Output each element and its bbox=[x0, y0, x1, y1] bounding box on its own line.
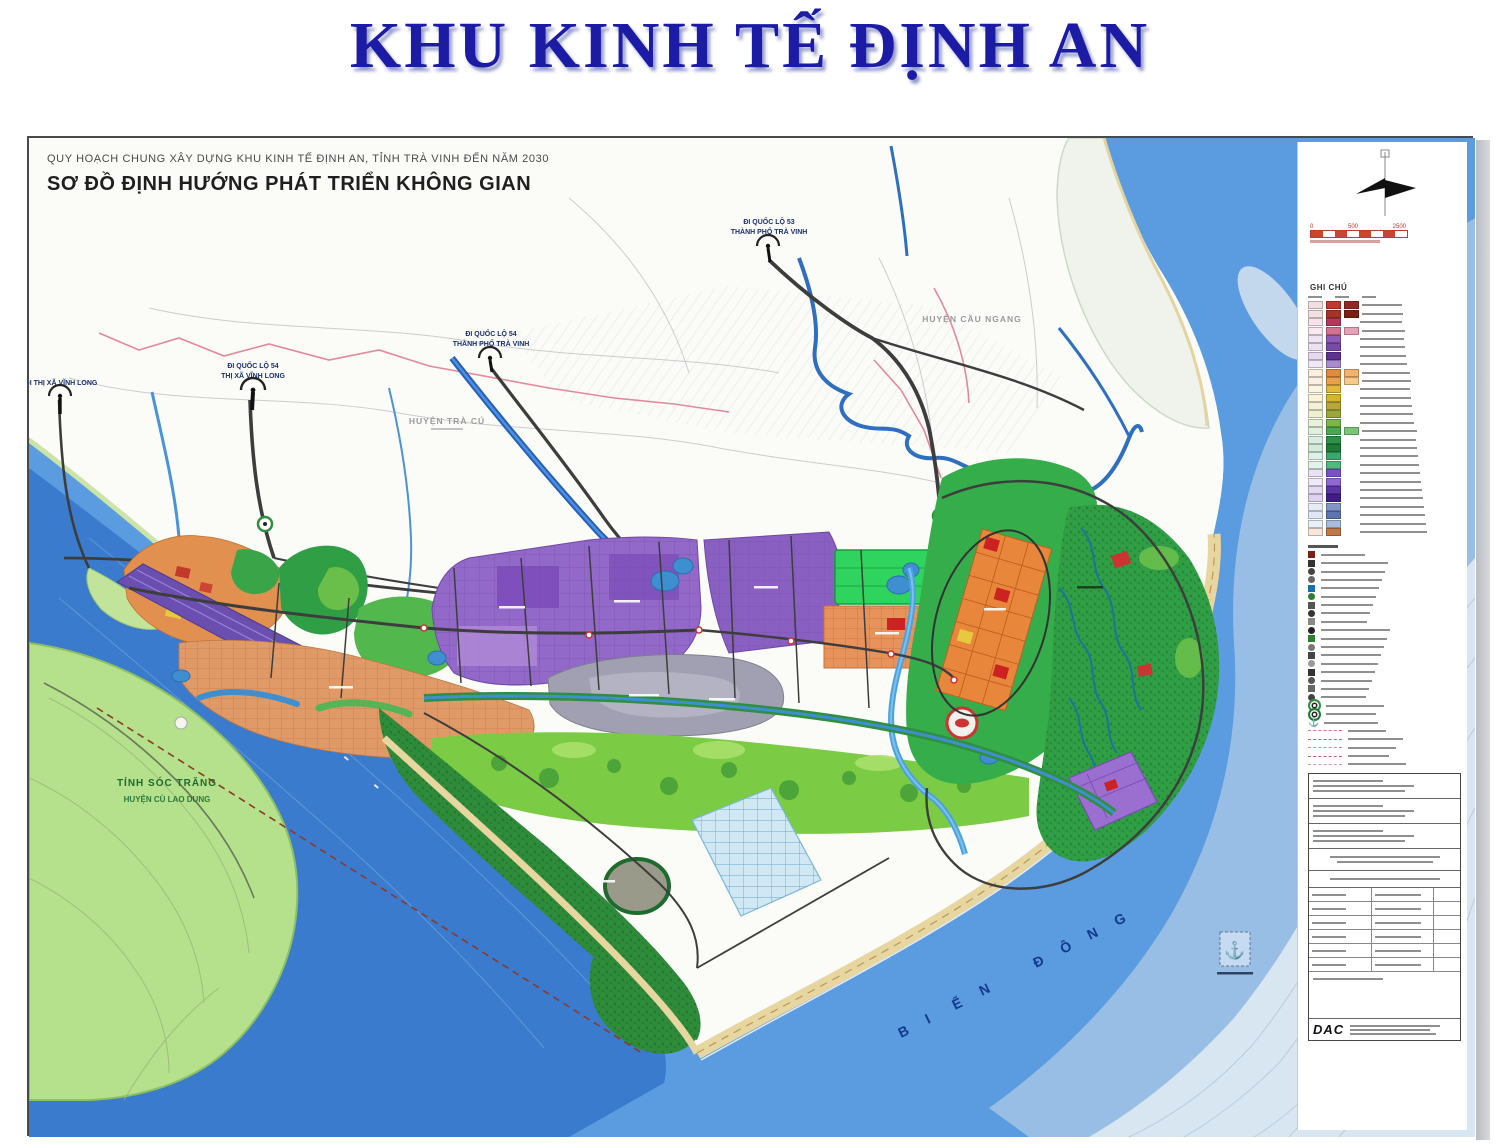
legend-zone-row bbox=[1308, 479, 1461, 485]
title-block-cell bbox=[1372, 888, 1434, 902]
legend-zone-row bbox=[1308, 487, 1461, 493]
legend-zone-rows bbox=[1308, 302, 1461, 535]
header-line1: QUY HOẠCH CHUNG XÂY DỰNG KHU KINH TẾ ĐỊN… bbox=[47, 152, 549, 165]
legend-anchor-symbol: ⚓ bbox=[1308, 720, 1461, 726]
title-block-cell bbox=[1372, 944, 1434, 958]
scale-ratio-smudge bbox=[1310, 240, 1380, 243]
sheet-edge-shadow bbox=[1476, 140, 1490, 1140]
legend-panel: 0 500 2500 GHI CHÚ ⚓ DA bbox=[1297, 142, 1467, 1130]
title-block-agency-3 bbox=[1309, 824, 1460, 849]
scale-tick-500: 500 bbox=[1348, 224, 1358, 230]
title-block-agency-1 bbox=[1309, 774, 1460, 799]
legend-zone-row bbox=[1308, 495, 1461, 501]
label-tinh-soc-trang: TỈNH SÓC TRĂNG bbox=[117, 776, 217, 789]
legend-symbol-row bbox=[1308, 627, 1461, 633]
legend-symbol-row bbox=[1308, 577, 1461, 583]
legend-zone-row bbox=[1308, 420, 1461, 426]
legend-dashed-row bbox=[1308, 736, 1461, 742]
dac-logo: DAC bbox=[1313, 1022, 1344, 1037]
title-block-cell bbox=[1309, 916, 1372, 930]
legend-zone-row bbox=[1308, 319, 1461, 325]
title-block-agency-2 bbox=[1309, 799, 1460, 824]
legend-zone-row bbox=[1308, 521, 1461, 527]
legend-zone-row bbox=[1308, 529, 1461, 535]
legend-zone-row bbox=[1308, 462, 1461, 468]
legend-symbol-row bbox=[1308, 644, 1461, 650]
north-arrow-icon bbox=[1350, 148, 1420, 220]
legend-column-headers bbox=[1308, 294, 1461, 300]
scale-stripes bbox=[1310, 230, 1408, 238]
title-block-cell bbox=[1309, 930, 1372, 944]
legend-symbol-row bbox=[1308, 619, 1461, 625]
legend-zone-row bbox=[1308, 328, 1461, 334]
legend-zone-row bbox=[1308, 470, 1461, 476]
planning-map: TỈNH SÓC TRĂNG HUYỆN CÙ LAO DUNG bbox=[29, 138, 1475, 1138]
scale-bar: 0 500 2500 bbox=[1310, 224, 1461, 243]
legend-junction-symbol-1 bbox=[1308, 703, 1461, 709]
legend-zone-row bbox=[1308, 311, 1461, 317]
legend-symbol-row bbox=[1308, 552, 1461, 558]
title-block-table bbox=[1309, 888, 1460, 972]
legend-zone-row bbox=[1308, 411, 1461, 417]
zone-gray-pond bbox=[605, 859, 669, 913]
legend-dashed-rows bbox=[1308, 728, 1461, 768]
label-huyen-cau-ngang: HUYỆN CẦU NGANG bbox=[922, 313, 1022, 324]
legend-zone-row bbox=[1308, 403, 1461, 409]
legend-dashed-row bbox=[1308, 728, 1461, 734]
legend-dashed-row bbox=[1308, 753, 1461, 759]
legend-symbol-row bbox=[1308, 594, 1461, 600]
legend-zone-row bbox=[1308, 353, 1461, 359]
title-block-cell bbox=[1434, 888, 1460, 902]
legend-symbol-row bbox=[1308, 694, 1461, 700]
legend-zone-row bbox=[1308, 504, 1461, 510]
label-huyen-cu-lao-dung: HUYỆN CÙ LAO DUNG bbox=[124, 795, 211, 804]
legend-symbol-row bbox=[1308, 669, 1461, 675]
legend-section2-header bbox=[1308, 543, 1461, 549]
sheet-header: QUY HOẠCH CHUNG XÂY DỰNG KHU KINH TẾ ĐỊN… bbox=[47, 152, 549, 195]
legend-zone-row bbox=[1308, 512, 1461, 518]
legend-zone-row bbox=[1308, 395, 1461, 401]
header-line2: SƠ ĐỒ ĐỊNH HƯỚNG PHÁT TRIỂN KHÔNG GIAN bbox=[47, 171, 531, 195]
title-block-cell bbox=[1309, 888, 1372, 902]
legend-symbol-row bbox=[1308, 652, 1461, 658]
map-sheet: TỈNH SÓC TRĂNG HUYỆN CÙ LAO DUNG bbox=[27, 136, 1473, 1136]
legend-zone-row bbox=[1308, 386, 1461, 392]
title-block-cell bbox=[1309, 902, 1372, 916]
title-block-logo-row: DAC bbox=[1309, 1019, 1460, 1040]
legend-zone-row bbox=[1308, 428, 1461, 434]
title-block-cell bbox=[1372, 902, 1434, 916]
anchor-icon: ⚓ bbox=[1308, 718, 1319, 727]
legend-zone-row bbox=[1308, 378, 1461, 384]
legend-symbol-row bbox=[1308, 569, 1461, 575]
legend-zone-row bbox=[1308, 336, 1461, 342]
legend-symbol-row bbox=[1308, 678, 1461, 684]
page-title: KHU KINH TẾ ĐỊNH AN bbox=[0, 8, 1500, 84]
title-block-cell bbox=[1372, 930, 1434, 944]
title-block-cell bbox=[1309, 958, 1372, 972]
title-block-cell bbox=[1434, 916, 1460, 930]
legend-symbol-rows bbox=[1308, 552, 1461, 701]
legend-junction-symbol-2 bbox=[1308, 711, 1461, 717]
title-block-cell bbox=[1434, 902, 1460, 916]
title-block-cell bbox=[1434, 930, 1460, 944]
legend-dashed-row bbox=[1308, 745, 1461, 751]
title-block-cell bbox=[1372, 916, 1434, 930]
legend-zone-row bbox=[1308, 370, 1461, 376]
title-block-cell bbox=[1434, 944, 1460, 958]
legend-zone-row bbox=[1308, 445, 1461, 451]
legend-symbol-row bbox=[1308, 610, 1461, 616]
title-block: DAC bbox=[1308, 773, 1461, 1041]
legend-zone-row bbox=[1308, 437, 1461, 443]
title-block-cell bbox=[1372, 958, 1434, 972]
legend-zone-row bbox=[1308, 302, 1461, 308]
title-block-project-name bbox=[1309, 849, 1460, 871]
legend-symbol-row bbox=[1308, 636, 1461, 642]
legend-zone-row bbox=[1308, 361, 1461, 367]
legend-symbol-row bbox=[1308, 560, 1461, 566]
legend-symbol-row bbox=[1308, 661, 1461, 667]
legend-zone-row bbox=[1308, 344, 1461, 350]
page: { "page": { "title": "KHU KINH TẾ ĐỊNH A… bbox=[0, 0, 1500, 1147]
scale-tick-0: 0 bbox=[1310, 224, 1313, 230]
island-settlement bbox=[175, 717, 187, 729]
label-huyen-tra-cu: HUYỆN TRÀ CÚ bbox=[409, 415, 485, 426]
scale-tick-2500: 2500 bbox=[1393, 224, 1406, 230]
title-block-cell bbox=[1434, 958, 1460, 972]
svg-text:⚓: ⚓ bbox=[1224, 940, 1245, 960]
legend-zone-row bbox=[1308, 453, 1461, 459]
legend-symbol-row bbox=[1308, 686, 1461, 692]
legend-dashed-row bbox=[1308, 761, 1461, 767]
junction-circle-west bbox=[258, 517, 272, 531]
legend-symbol-row bbox=[1308, 602, 1461, 608]
title-block-drawing-name bbox=[1309, 871, 1460, 888]
title-block-notes bbox=[1309, 972, 1460, 1019]
title-block-cell bbox=[1309, 944, 1372, 958]
legend-symbol-row bbox=[1308, 585, 1461, 591]
legend-title: GHI CHÚ bbox=[1310, 283, 1461, 292]
